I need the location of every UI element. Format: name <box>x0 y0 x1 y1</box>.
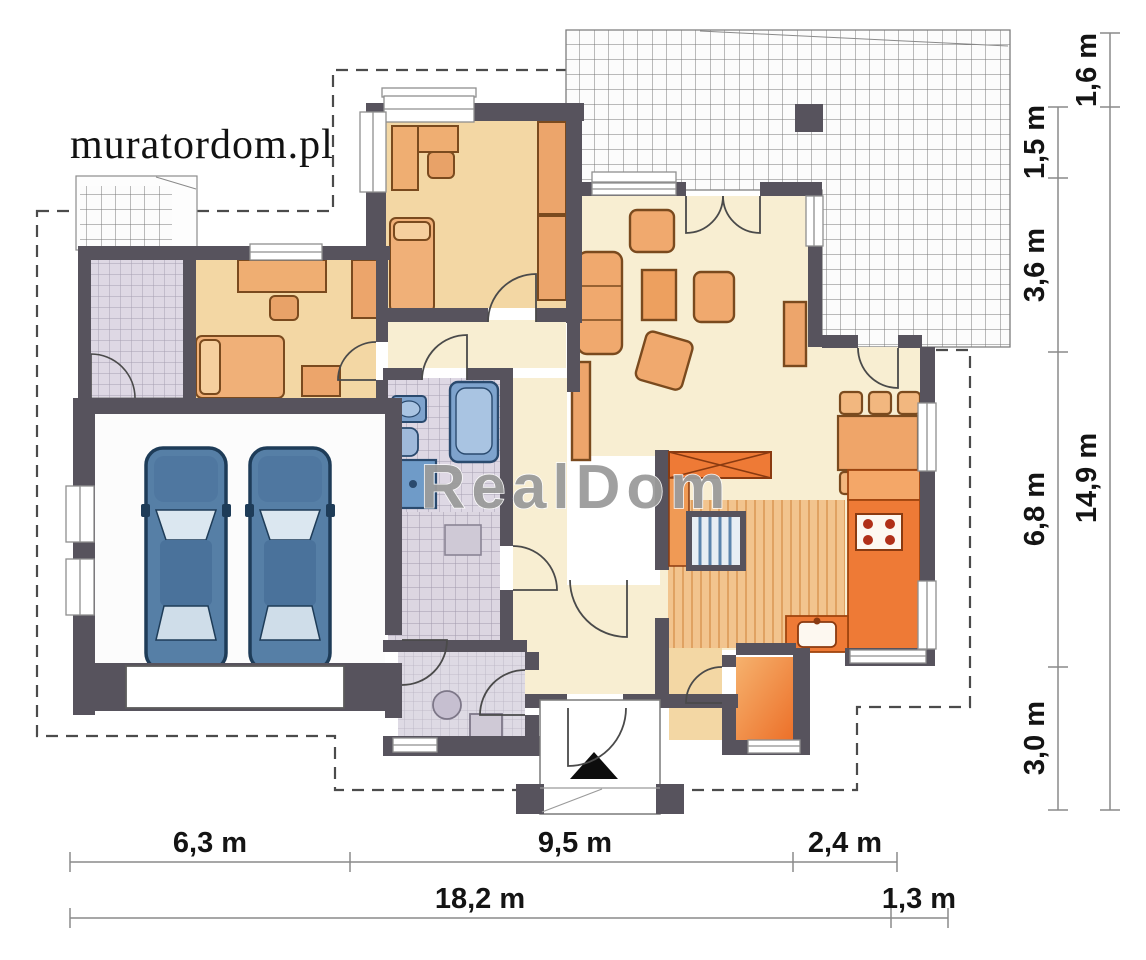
window <box>918 581 936 649</box>
sofa <box>578 252 622 354</box>
dimension-label: 6,8 m <box>1019 472 1051 546</box>
floor-plan-page: 6,3 m 9,5 m 2,4 m 18,2 m 1,3 m 1,5 m 3,6… <box>0 0 1146 960</box>
garage-door <box>126 666 344 708</box>
car <box>245 448 335 670</box>
kitchen-counter <box>848 470 920 500</box>
terrace-left-upper <box>76 176 197 250</box>
window <box>592 172 676 195</box>
dining-chair <box>869 392 891 414</box>
dimension-label: 3,0 m <box>1019 701 1051 775</box>
watermark-brand: RealDom <box>421 453 732 522</box>
terrace-post <box>795 104 823 132</box>
dimension-label: 1,3 m <box>882 883 956 915</box>
floor-plan-canvas: 6,3 m 9,5 m 2,4 m 18,2 m 1,3 m 1,5 m 3,6… <box>0 0 1146 960</box>
terrace-left-lower <box>88 252 185 398</box>
window <box>918 403 936 471</box>
dimension-label: 2,4 m <box>808 827 882 859</box>
desk <box>238 260 326 292</box>
chair <box>270 296 298 320</box>
watermark-site: muratordom.pl <box>70 122 334 168</box>
bed-pillow <box>200 340 220 394</box>
garage-floor <box>95 414 385 664</box>
chair <box>428 152 454 178</box>
dimension-label: 3,6 m <box>1019 228 1051 302</box>
car <box>141 448 231 670</box>
dining-chair <box>898 392 920 414</box>
wardrobe-cabinet <box>538 216 566 300</box>
cabinet <box>784 302 806 366</box>
tiled-hall-floor <box>388 512 500 640</box>
armchair <box>630 210 674 252</box>
dining-chair <box>840 392 862 414</box>
window <box>850 650 926 663</box>
dimension-label: 9,5 m <box>538 827 612 859</box>
dimension-label: 1,5 m <box>1019 105 1051 179</box>
window <box>250 244 322 260</box>
dimension-label: 6,3 m <box>173 827 247 859</box>
bed-pillow <box>394 222 430 240</box>
desk <box>392 126 418 190</box>
dimension-line-right-total <box>1100 33 1120 810</box>
stove <box>856 514 902 550</box>
dimension-label: 14,9 m <box>1071 433 1103 523</box>
window <box>806 196 823 246</box>
window <box>66 559 94 615</box>
armchair <box>694 272 734 322</box>
hall-floor <box>388 320 566 368</box>
kitchen-sink <box>798 618 836 648</box>
window <box>748 740 800 753</box>
dimension-label: 18,2 m <box>435 883 525 915</box>
utility-floor <box>398 652 525 736</box>
window <box>360 112 386 192</box>
window <box>393 738 437 752</box>
window <box>66 486 94 542</box>
dimension-label: 1,6 m <box>1071 33 1103 107</box>
wardrobe-cabinet <box>538 122 566 214</box>
window <box>382 88 476 122</box>
entry-hall-floor <box>513 585 660 694</box>
dining-table <box>838 416 918 470</box>
hall-bench <box>445 525 481 555</box>
laundry-sink <box>433 691 461 719</box>
washing-machine <box>470 714 502 738</box>
cabinet <box>302 366 340 396</box>
walk-in-closet-floor <box>736 657 794 741</box>
dimension-line-right-primary <box>1048 107 1068 810</box>
coffee-table <box>642 270 676 320</box>
